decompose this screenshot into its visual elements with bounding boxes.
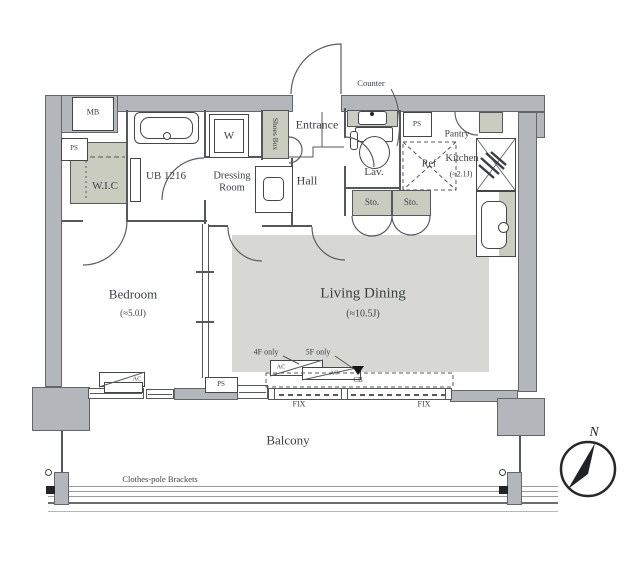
bedroom-label: Bedroom bbox=[109, 288, 157, 303]
counter-leader-line bbox=[391, 89, 399, 146]
entrance-label: Entrance bbox=[296, 118, 339, 131]
fix-window-right-label: FIX bbox=[418, 401, 431, 410]
compass-north-label: N bbox=[588, 425, 599, 440]
door-swing-arcs bbox=[83, 44, 478, 265]
pipe-space-bottom-label: PS bbox=[217, 381, 225, 389]
stove-x-lines bbox=[477, 139, 515, 190]
hall-door-arc bbox=[312, 227, 345, 260]
bedroom-door-arc bbox=[83, 221, 127, 265]
clothes-pole-label: Clothes-pole Brackets bbox=[122, 475, 197, 485]
wic-label: W.I.C bbox=[92, 180, 118, 192]
meter-box-label: MB bbox=[87, 109, 99, 118]
balcony-label: Balcony bbox=[266, 434, 309, 449]
living-dining-label: Living Dining bbox=[320, 286, 405, 303]
floor-note-leader-lines bbox=[283, 356, 354, 369]
kitchen-size-label: (≈2.1J) bbox=[450, 171, 473, 180]
dressing-door-arc bbox=[228, 227, 262, 261]
ac-bedroom-label: AC bbox=[132, 375, 141, 382]
curtain-box-label: CB bbox=[353, 377, 362, 385]
compass: N bbox=[561, 425, 615, 496]
ac-4f-label: AC bbox=[276, 363, 285, 370]
ac-5f-label: AC bbox=[329, 369, 338, 376]
kitchen-label: Kitchen bbox=[445, 153, 478, 165]
curtain-box-marker bbox=[352, 366, 364, 375]
pipe-space-lav-label: PS bbox=[413, 120, 421, 128]
floor-plan: N MB PS W.I.C UB 1216 W Dressing Room Sh… bbox=[0, 0, 640, 569]
refrigerator-label: Ref bbox=[422, 158, 436, 169]
unit-bath-label: UB 1216 bbox=[144, 170, 188, 182]
counter-label: Counter bbox=[357, 79, 384, 89]
note-4f-label: 4F only bbox=[254, 349, 279, 358]
compass-needle bbox=[568, 443, 595, 489]
pipe-space-wic-label: PS bbox=[70, 145, 78, 153]
lav-door-arc bbox=[344, 137, 374, 167]
shoes-box-door-arcs bbox=[289, 137, 302, 163]
fix-window-left-label: FIX bbox=[293, 401, 306, 410]
note-5f-label: 5F only bbox=[306, 349, 331, 358]
storage-b-label: Sto. bbox=[404, 197, 418, 207]
living-dining-size-label: (≈10.5J) bbox=[346, 308, 380, 319]
lavatory-label: Lav. bbox=[364, 166, 383, 178]
dressing-room-label: Dressing Room bbox=[203, 170, 261, 194]
storage-bifold-arcs bbox=[352, 216, 430, 236]
washer-label: W bbox=[224, 130, 234, 142]
ac-diagonals bbox=[99, 360, 361, 387]
pantry-label: Pantry bbox=[445, 130, 470, 141]
hall-label: Hall bbox=[297, 174, 318, 187]
storage-a-label: Sto. bbox=[365, 197, 379, 207]
plan-symbol-overlay: N bbox=[0, 0, 640, 569]
shoes-box-label: Shoes Box bbox=[271, 118, 279, 150]
bedroom-size-label: (≈5.0J) bbox=[120, 308, 146, 318]
entrance-door-arc bbox=[291, 44, 341, 94]
